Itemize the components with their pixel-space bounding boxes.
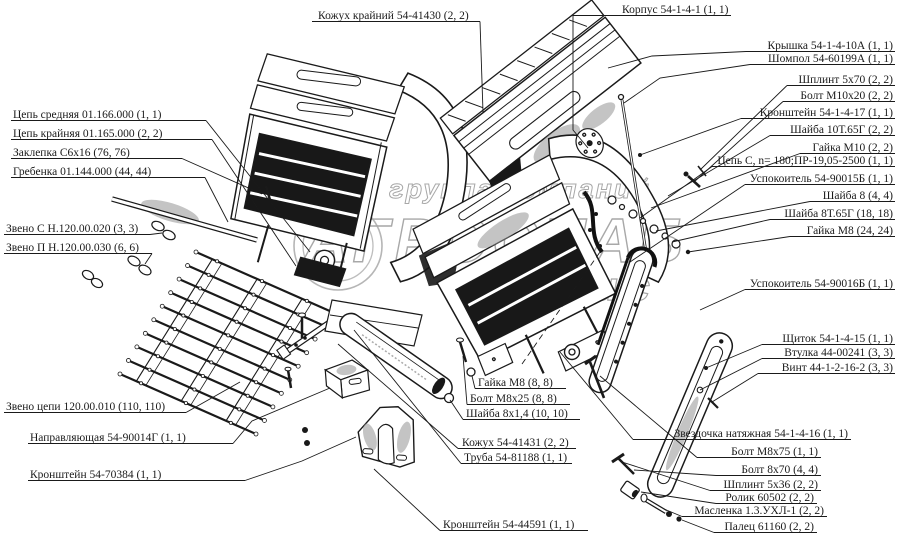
label-tsep-kraynyaya: Цепь крайняя 01.165.000 (2, 2) [13, 128, 163, 140]
chain-web-knob [126, 358, 130, 362]
leader-line-zveno-p [145, 254, 152, 265]
chain-web-knob [156, 355, 159, 358]
chain-web-knob [173, 327, 176, 330]
label-shayba-8t65g: Шайба 8Т.65Г (18, 18) [784, 208, 893, 220]
label-zveno-tsepi: Звено цепи 120.00.010 (110, 110) [6, 401, 165, 413]
leader-line-gayka-m8-8 [472, 376, 475, 389]
chain-web-knob [160, 304, 164, 308]
label-gayka-m8-8: Гайка М8 (8, 8) [478, 377, 553, 389]
chain-web-knob [182, 314, 185, 317]
label-shayba-10t65g: Шайба 10Т.65Г (2, 2) [790, 124, 893, 136]
chain-web-knob [177, 277, 181, 281]
label-kozhuh-41431: Кожух 54-41431 (2, 2) [462, 437, 569, 449]
label-gayka-m8-24: Гайка М8 (24, 24) [807, 225, 893, 237]
label-korpus: Корпус 54-1-4-1 (1, 1) [622, 4, 729, 16]
chain-web-knob [305, 299, 308, 302]
guide-angle-bracket [323, 358, 371, 400]
label-uspokoitel-90015b: Успокоитель 54-90015Б (1, 1) [750, 173, 893, 185]
chain-web-knob [271, 354, 274, 357]
chain-web-knob [246, 394, 249, 397]
label-kronshteyn-44591: Кронштейн 54-44591 (1, 1) [443, 519, 575, 531]
chain-web-knob [143, 331, 147, 335]
chain-web-knob [215, 260, 218, 263]
label-shplint-5x36: Шплинт 5х36 (2, 2) [724, 479, 819, 491]
leader-line-kronshteyn-54-1-4-17 [640, 119, 741, 156]
leader-line-bolt-m8x25 [463, 356, 467, 405]
label-kronshteyn-70384: Кронштейн 54-70384 (1, 1) [30, 469, 162, 481]
chain-web-knob [280, 340, 283, 343]
parts-diagram: группа компаний АГРОСНАБ сервис [0, 0, 900, 542]
chain-web-knob [184, 402, 187, 405]
leader-line-uspokoitel-90016b [700, 290, 745, 311]
label-zveno-s: Звено С Н.120.00.020 (3, 3) [6, 223, 138, 235]
leader-line-kronshteyn-44591 [374, 469, 440, 531]
chain-web-knob [305, 351, 309, 355]
chain-web-knob [288, 326, 291, 329]
leader-line-palets [682, 520, 714, 533]
label-kryshka: Крышка 54-1-4-10А (1, 1) [768, 40, 894, 52]
parts-diagram-page: группа компаний АГРОСНАБ сервис [0, 0, 900, 542]
leader-line-zveno-s [150, 233, 162, 235]
label-bolt-8x70: Болт 8х70 (4, 4) [741, 464, 818, 476]
label-rolik: Ролик 60502 (2, 2) [725, 492, 814, 504]
label-bolt-m10x20: Болт М10х20 (2, 2) [800, 90, 893, 102]
label-kozhuh-krayniy: Кожух крайний 54-41430 (2, 2) [318, 10, 469, 22]
label-shompol: Шомпол 54-60199А (1, 1) [768, 53, 893, 65]
label-shchitok: Щиток 54-1-4-15 (1, 1) [782, 333, 893, 345]
label-kronshteyn-54-1-4-17: Кронштейн 54-1-4-17 (1, 1) [760, 107, 893, 119]
chain-web-knob [169, 291, 173, 295]
leader-line-kronshteyn-70384 [245, 437, 356, 481]
chain-web-knob [193, 388, 196, 391]
chain-web-knob [218, 347, 221, 350]
chain-web-knob [262, 418, 266, 422]
arch-bracket [356, 404, 418, 468]
label-napravlyayushchaya: Направляющая 54-90014Г (1, 1) [30, 432, 186, 444]
leader-line-zveno-tsepi [186, 382, 240, 413]
label-shayba-8: Шайба 8 (4, 4) [823, 190, 893, 202]
chain-web-knob [199, 287, 202, 290]
chain-web-knob [186, 264, 190, 268]
label-truba: Труба 54-81188 (1, 1) [464, 452, 567, 464]
chain-web-knob [139, 382, 142, 385]
chain-web-knob [165, 341, 168, 344]
chain-web-knob [210, 361, 213, 364]
chain-web-knob [260, 280, 263, 283]
label-maslenka: Масленка 1.3.УХЛ-1 (2, 2) [694, 505, 824, 517]
label-vint: Винт 44-1-2-16-2 (3, 3) [782, 362, 893, 374]
chain-web-knob [152, 318, 156, 322]
chain-web-knob [271, 405, 275, 409]
leader-line-shompol [624, 65, 750, 104]
chain-web-knob [190, 300, 193, 303]
chain-web-knob [279, 391, 283, 395]
label-zveno-p: Звено П Н.120.00.030 (6, 6) [6, 242, 139, 254]
label-shayba-8x14: Шайба 8х1,4 (10, 10) [466, 408, 568, 420]
chain-web-knob [252, 293, 255, 296]
label-tsep-srednyaya: Цепь средняя 01.166.000 (1, 1) [13, 109, 162, 121]
label-uspokoitel-90016b: Успокоитель 54-90016Б (1, 1) [750, 278, 893, 290]
label-shplint-5x70: Шплинт 5х70 (2, 2) [799, 74, 894, 86]
label-gayka-m10: Гайка М10 (2, 2) [812, 142, 893, 154]
chain-web-knob [229, 421, 232, 424]
corpus-assembly [396, 108, 710, 414]
leader-line-gayka-m8-24 [688, 237, 790, 253]
label-bolt-m8x75: Болт М8х75 (1, 1) [731, 446, 818, 458]
leader-line-shayba-8x14 [450, 400, 463, 420]
chain-web-knob [118, 372, 122, 376]
chain-web-knob [296, 364, 300, 368]
label-grebenka: Гребенка 01.144.000 (44, 44) [13, 166, 151, 178]
chain-web-knob [238, 408, 241, 411]
chain-web-knob [148, 368, 151, 371]
chain-web-knob [255, 381, 258, 384]
chain-web-knob [207, 273, 210, 276]
label-zvezdochka: Звездочка натяжная 54-1-4-16 (1, 1) [675, 428, 849, 440]
leader-line-shayba-8t65g [672, 220, 770, 243]
chain-web-knob [313, 337, 317, 341]
label-bolt-m8x25: Болт М8х25 (8, 8) [470, 393, 557, 405]
label-palets: Палец 61160 (2, 2) [725, 521, 815, 533]
chain-web-knob [243, 307, 246, 310]
label-vtulka: Втулка 44-00241 (3, 3) [784, 347, 893, 359]
chain-web-knob [227, 334, 230, 337]
chain-web-knob [254, 432, 258, 436]
chain-web-knob [135, 345, 139, 349]
chain-web-knob [263, 367, 266, 370]
chain-web-knob [235, 320, 238, 323]
leader-line-grebenka [205, 178, 228, 223]
label-tsep-s: Цепь С, n= 180;ПР-19,05-2500 (1, 1) [717, 155, 893, 167]
chain-web-knob [201, 374, 204, 377]
chain-web-knob [194, 250, 198, 254]
label-zaklepka: Заклепка С6х16 (76, 76) [13, 147, 130, 159]
